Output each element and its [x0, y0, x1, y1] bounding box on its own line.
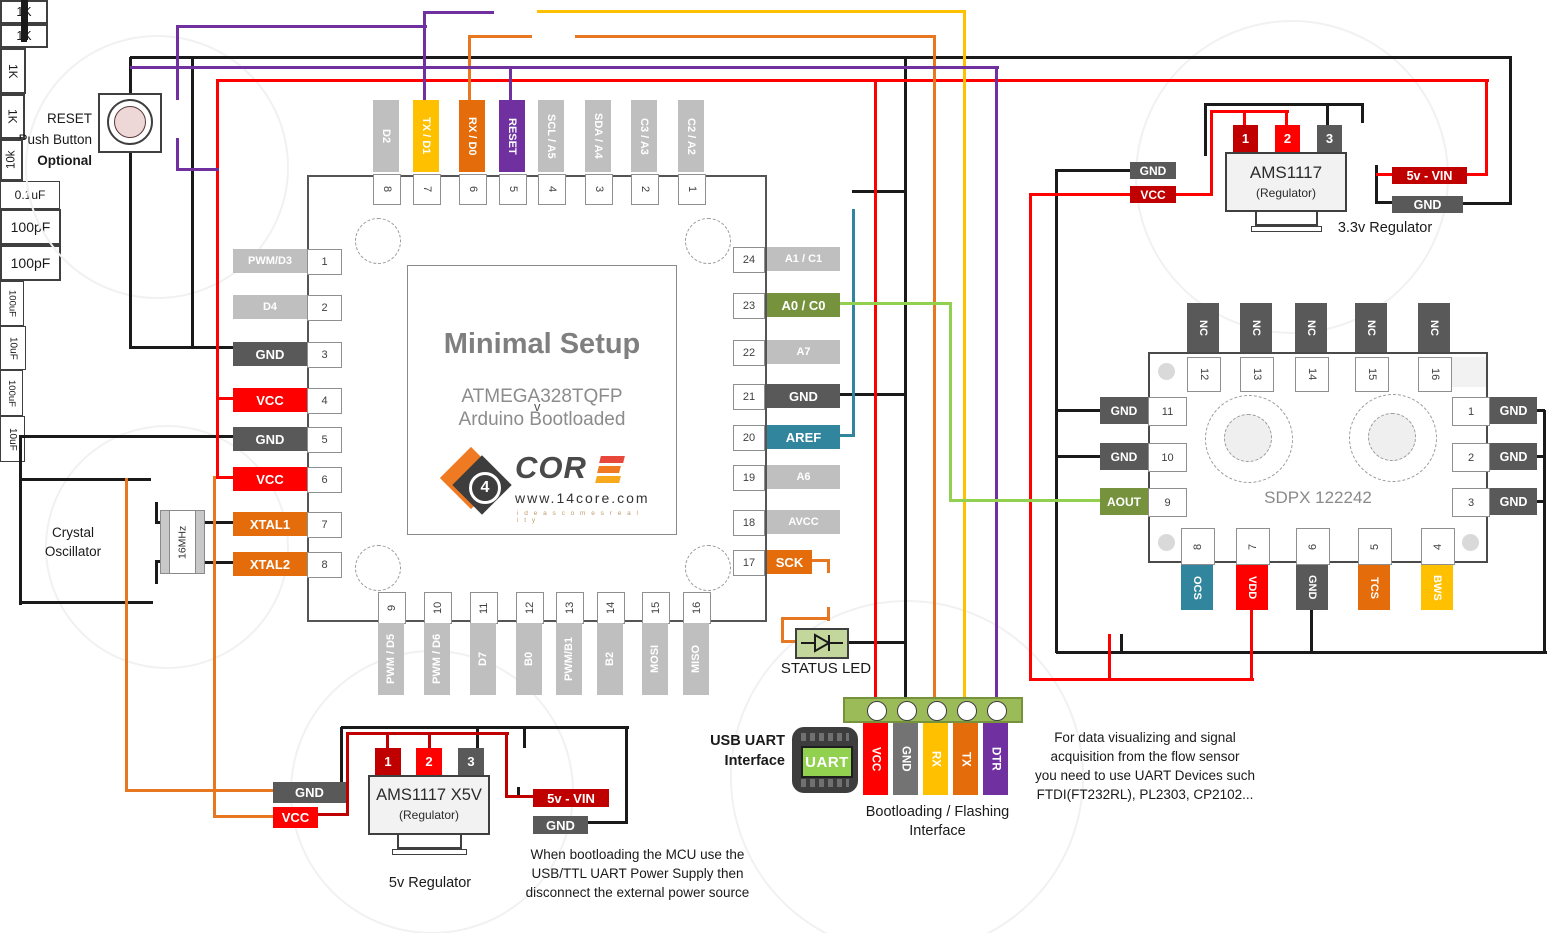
wire [1537, 500, 1545, 503]
mcu-left-pin-label: PWM/D3 [233, 249, 307, 273]
wire [155, 560, 158, 584]
reg33-vin-text: 5v - VIN [1407, 169, 1453, 183]
cap-value: 100uF [7, 290, 18, 317]
reg33-pin3-text: 3 [1326, 131, 1333, 146]
reg5-pin3: 3 [458, 748, 484, 775]
reg33-vcc-label: VCC [1130, 186, 1176, 203]
sensor-top-pin-number: 15 [1355, 357, 1389, 392]
mcu-right-pin-number: 23 [733, 293, 765, 319]
sensor-top-pin-number: 13 [1240, 357, 1274, 392]
wire [346, 732, 349, 816]
uart-header-hole [957, 701, 977, 721]
mcu-top-pin-number: 2 [631, 174, 659, 205]
wire [176, 138, 179, 171]
wire [852, 209, 855, 437]
status-led [795, 628, 849, 659]
wire [19, 435, 22, 605]
reg5-vcc-text: VCC [282, 810, 309, 825]
reg5-name: AMS1117 X5V [370, 786, 488, 805]
mcu-right-pin-label: SCK [767, 550, 812, 574]
wire [1204, 103, 1364, 106]
wire [949, 499, 1101, 502]
logo-number: 4 [481, 479, 490, 497]
circuit-diagram: RESET Push Button Optional 1K 1K 1K 1K 1… [0, 0, 1561, 933]
mcu-top-pin-label: C3 / A3 [631, 100, 657, 172]
wire [476, 727, 479, 749]
sensor-corner-dot [1462, 534, 1479, 551]
mcu-top-pin-label: RX / D0 [459, 100, 485, 172]
wire [1509, 56, 1512, 205]
mcu-top-pin-label: SCL / A5 [538, 100, 564, 172]
wire [176, 168, 219, 171]
mcu-bottom-pin-label: B0 [516, 623, 542, 695]
crystal-band [161, 511, 170, 573]
logo-tagline: i d e a s c o m e s r e a l i t y [517, 510, 647, 524]
mcu-bottom-pin-number: 11 [470, 592, 498, 624]
reg5-vcc-label: VCC [273, 807, 318, 828]
wire [428, 732, 431, 749]
wire [1463, 202, 1511, 205]
sensor-port-inner [1368, 413, 1416, 461]
wire [20, 435, 234, 438]
sensor-right-pin-label: GND [1490, 443, 1537, 470]
reg33-vin-label: 5v - VIN [1392, 167, 1467, 184]
cap-band [21, 0, 27, 42]
wire [216, 79, 219, 479]
mcu-left-pin-number: 2 [307, 295, 342, 321]
cap-value: 10uF [7, 428, 18, 451]
reg5-tab-lip [392, 849, 467, 855]
mcu-top-pin-label: RESET [499, 100, 525, 172]
crystal-16mhz: 16MHz [160, 510, 205, 574]
wire [575, 35, 936, 38]
mcu-left-pin-label: D4 [233, 295, 307, 319]
reg5-gnd-label: GND [273, 782, 346, 803]
wire [423, 11, 426, 101]
sensor-right-pin-number: 2 [1452, 443, 1490, 472]
sensor-top-pin-number: 14 [1295, 357, 1329, 392]
wire [341, 726, 629, 729]
uart-chip-legs-top [801, 733, 849, 741]
mcu-bottom-pin-number: 14 [597, 592, 625, 624]
wire [203, 521, 234, 524]
wire [1243, 110, 1246, 126]
sensor-corner-square [1452, 357, 1486, 387]
reg5-pin1: 1 [375, 748, 401, 775]
brand-logo: 4 COR www.14core.com i d e a s c o m e s… [447, 448, 647, 528]
mcu-corner-mark [355, 218, 401, 264]
sensor-top-pin-label: NC [1295, 303, 1327, 352]
wire [386, 732, 389, 749]
mcu-bottom-pin-number: 10 [424, 592, 452, 624]
crystal-label: Crystal Oscillator [18, 523, 128, 561]
reg5-tab [397, 835, 462, 849]
crystal-label-line1: Crystal [18, 523, 128, 542]
wire [1057, 409, 1101, 412]
mcu-top-pin-number: 5 [499, 174, 527, 205]
mcu-left-pin-label: GND [233, 427, 307, 451]
sensor-bottom-pin-number: 5 [1358, 528, 1392, 565]
reg33-pin3: 3 [1317, 125, 1342, 152]
mcu-bottom-pin-label: MOSI [642, 623, 668, 695]
sensor-bottom-pin-number: 6 [1296, 528, 1330, 565]
wire [1210, 110, 1213, 196]
wire [933, 35, 936, 699]
wire [424, 11, 494, 14]
mcu-left-pin-number: 3 [307, 342, 342, 368]
sensor-right-pin-number: 3 [1452, 488, 1490, 517]
wire [1466, 173, 1487, 176]
wire [963, 10, 966, 699]
sensor-left-pin-label: GND [1100, 443, 1148, 470]
reg5-pin3-text: 3 [467, 754, 474, 769]
mcu-bottom-pin-number: 16 [683, 592, 711, 624]
mcu-bottom-pin-label: PWM / D5 [378, 623, 404, 695]
wire [1057, 455, 1101, 458]
wire [317, 813, 348, 816]
logo-e-bar [599, 456, 625, 463]
mcu-left-pin-number: 8 [307, 552, 342, 578]
sensor-left-pin-number: 11 [1148, 397, 1187, 426]
mcu-left-pin-number: 7 [307, 512, 342, 538]
cap-value: 10uF [8, 337, 19, 360]
mcu-right-pin-number: 19 [733, 465, 765, 491]
uart-pin-label: GND [893, 723, 918, 795]
wire [1543, 410, 1546, 653]
reg33-pin1-text: 1 [1242, 131, 1249, 146]
sensor-right-pin-label: GND [1490, 488, 1537, 515]
reg5-pin1-text: 1 [384, 754, 391, 769]
wire [1175, 193, 1213, 196]
sensor-bottom-pin-label: BWS [1421, 565, 1453, 610]
bootloading-caption: Bootloading / Flashing Interface [850, 803, 1025, 841]
logo-site: www.14core.com [515, 490, 650, 506]
mcu-bottom-pin-label: D7 [470, 623, 496, 695]
mcu-top-pin-label: TX / D1 [413, 100, 439, 172]
crystal-label-line2: Oscillator [18, 542, 128, 561]
wire [1057, 169, 1131, 172]
crystal-band [195, 511, 204, 573]
uart-chip: UART [792, 727, 858, 793]
reg33-gnd-text: GND [1140, 164, 1167, 178]
sensor-bottom-pin-label: GND [1296, 565, 1328, 610]
uart-note-line: For data visualizing and signal [1010, 728, 1280, 747]
wire [1537, 409, 1545, 412]
sensor-name: SDPX 122242 [1238, 488, 1398, 508]
wire [20, 478, 151, 481]
wire [1120, 634, 1123, 653]
mcu-bottom-pin-number: 9 [378, 592, 406, 624]
mcu-top-pin-number: 4 [538, 174, 566, 205]
mcu-corner-mark [685, 218, 731, 264]
sensor-bottom-pin-label: TCS [1358, 565, 1390, 610]
mcu-left-pin-number: 4 [307, 388, 342, 414]
cap-100pF-bottom: 100pF [0, 245, 61, 281]
sensor-left-pin-number: 10 [1148, 443, 1187, 472]
resistor-10k-led: 10k [0, 139, 23, 181]
reg33-gnd2-text: GND [1414, 198, 1442, 212]
resistor-1k-reset: 1K [0, 48, 26, 94]
wire [470, 35, 532, 38]
wire [852, 190, 907, 193]
wire [586, 821, 627, 824]
wire [1537, 455, 1545, 458]
usb-uart-line2: Interface [685, 751, 785, 771]
reg5-caption: 5v Regulator [375, 875, 485, 891]
wire [840, 302, 952, 305]
wire [509, 66, 512, 100]
sensor-top-pin-number: 16 [1418, 357, 1452, 392]
mcu-right-pin-number: 22 [733, 340, 765, 366]
mcu-left-pin-number: 1 [307, 249, 342, 275]
uart-header-hole [927, 701, 947, 721]
sensor-corner-dot [1158, 363, 1175, 380]
uart-pin-label: VCC [863, 723, 888, 795]
reg33-cap-100uF: 100uF [0, 370, 23, 416]
mcu-corner-mark [355, 545, 401, 591]
wire [904, 57, 907, 700]
wire [213, 476, 216, 818]
mcu-top-pin-number: 7 [413, 174, 441, 205]
sensor-bottom-pin-label: OCS [1181, 565, 1213, 610]
uart-note-line: FTDI(FT232RL), PL2303, CP2102... [1010, 785, 1280, 804]
uart-note-line: you need to use UART Devices such [1010, 766, 1280, 785]
sensor-corner-dot [1158, 534, 1175, 551]
sensor-bottom-pin-number: 4 [1421, 528, 1455, 565]
reg33-tab-lip [1251, 226, 1322, 232]
sensor-top-pin-label: NC [1187, 303, 1219, 352]
reg33-body: AMS1117 (Regulator) [1225, 152, 1347, 212]
uart-note: For data visualizing and signal acquisit… [1010, 728, 1280, 804]
wire [340, 727, 343, 784]
sensor-left-pin-label: GND [1100, 397, 1148, 424]
sensor-left-pin-number: 9 [1148, 488, 1187, 517]
mcu-left-pin-number: 5 [307, 427, 342, 453]
sensor-right-pin-number: 1 [1452, 397, 1490, 426]
cap-value: 100uF [6, 380, 17, 407]
wire [537, 10, 966, 13]
reg5-pin2: 2 [416, 748, 442, 775]
mcu-right-pin-number: 21 [733, 384, 765, 410]
wire [1108, 634, 1111, 680]
reg33-gnd-label: GND [1130, 162, 1176, 179]
wire [949, 302, 952, 502]
mcu-right-pin-number: 24 [733, 247, 765, 273]
mcu-right-pin-number: 17 [733, 550, 765, 576]
mcu-right-pin-label: A0 / C0 [767, 293, 840, 317]
reset-button-cap [114, 106, 146, 138]
sensor-bottom-pin-number: 8 [1181, 528, 1215, 565]
mcu-left-pin-label: VCC [233, 388, 307, 412]
reg5-gnd2-text: GND [546, 818, 575, 833]
wire [1285, 110, 1288, 126]
wire [625, 727, 628, 824]
mcu-corner-mark [685, 545, 731, 591]
reg5-sub: (Regulator) [370, 808, 488, 822]
mcu-bottom-pin-label: PWM / D6 [424, 623, 450, 695]
crystal-freq: 16MHz [170, 511, 195, 573]
reg5-cap-100uF: 100uF [0, 281, 24, 326]
reg5-cap-10uF: 10uF [0, 326, 26, 370]
wire [191, 57, 194, 349]
mcu-top-pin-number: 3 [585, 174, 613, 205]
uart-chip-legs-bottom [801, 779, 849, 787]
logo-e-bar [595, 476, 621, 483]
reg33-pin1: 1 [1233, 125, 1258, 152]
usb-uart-label: USB UART Interface [685, 731, 785, 771]
mcu-top-pin-label: D2 [373, 100, 399, 172]
uart-pin-label: RX [923, 723, 948, 795]
wire [216, 79, 1489, 82]
logo-e-bar [597, 466, 621, 473]
sensor-top-pin-label: NC [1355, 303, 1387, 352]
reset-line1: RESET [0, 108, 92, 129]
wire [176, 25, 179, 100]
reg33-tab [1255, 212, 1318, 226]
reg33-vcc-text: VCC [1140, 188, 1165, 202]
reg5-gnd2-label: GND [533, 816, 588, 834]
mcu-top-pin-number: 8 [373, 174, 401, 205]
wire [874, 79, 877, 699]
bootload-note-line: When bootloading the MCU use the [500, 845, 775, 864]
status-led-label: STATUS LED [771, 660, 881, 677]
wire [1375, 201, 1393, 204]
usb-uart-line1: USB UART [685, 731, 785, 751]
reg5-gnd-text: GND [295, 785, 324, 800]
wire [781, 617, 829, 620]
mcu-bottom-pin-label: B2 [597, 623, 623, 695]
wire [1310, 610, 1313, 653]
wire [840, 434, 855, 437]
wire [1375, 165, 1378, 204]
mcu-bottom-pin-number: 15 [642, 592, 670, 624]
uart-chip-label: UART [805, 754, 849, 771]
wire [1030, 193, 1131, 196]
wire [219, 476, 234, 479]
wire [995, 66, 998, 699]
uart-header-hole [867, 701, 887, 721]
wire [129, 57, 132, 94]
wire [203, 561, 234, 564]
mcu-left-pin-label: VCC [233, 467, 307, 491]
logo-word: COR [515, 450, 587, 486]
sensor-bottom-pin-label: VDD [1236, 565, 1268, 610]
mcu-bottom-pin-number: 12 [516, 592, 544, 624]
uart-header-hole [987, 701, 1007, 721]
mcu-left-pin-label: XTAL2 [233, 552, 307, 576]
uart-note-line: acquisition from the flow sensor [1010, 747, 1280, 766]
wire [125, 789, 274, 792]
wire [1204, 104, 1207, 156]
sensor-bottom-pin-number: 7 [1236, 528, 1270, 565]
wire [1250, 610, 1253, 680]
reg33-name: AMS1117 [1227, 163, 1345, 183]
logo-ring: 4 [469, 472, 501, 504]
mcu-left-pin-number: 6 [307, 467, 342, 493]
mcu-title: Minimal Setup [407, 328, 677, 361]
bootloading-caption-line2: Interface [850, 822, 1025, 841]
wire [155, 502, 158, 523]
mcu-bottom-pin-number: 13 [556, 592, 584, 624]
mcu-right-pin-label: AREF [767, 425, 840, 449]
wire [505, 795, 534, 798]
led-diode-icon [797, 630, 847, 657]
reg33-gnd2-label: GND [1392, 196, 1463, 213]
mcu-left-pin-label: GND [233, 342, 307, 366]
uart-header-hole [897, 701, 917, 721]
reg5-vin-label: 5v - VIN [533, 789, 609, 807]
wire [213, 815, 274, 818]
mcu-right-pin-number: 18 [733, 510, 765, 536]
wire [523, 727, 526, 748]
wire [1210, 110, 1289, 113]
wire [1029, 193, 1032, 681]
reg5-body: AMS1117 X5V (Regulator) [368, 775, 490, 835]
reg5-vin-text: 5v - VIN [547, 791, 595, 806]
wire [219, 397, 234, 400]
mcu-right-pin-label: A1 / C1 [767, 247, 840, 271]
reg33-sub: (Regulator) [1227, 186, 1345, 200]
mcu-left-pin-label: XTAL1 [233, 512, 307, 536]
mcu-bottom-pin-label: MISO [683, 623, 709, 695]
wire [177, 25, 427, 28]
reg33-pin2-text: 2 [1284, 131, 1291, 146]
mcu-right-pin-label: GND [767, 384, 840, 408]
mcu-top-pin-label: SDA / A4 [585, 100, 611, 172]
mcu-right-pin-number: 20 [733, 425, 765, 451]
wire [1029, 678, 1254, 681]
uart-pin-label: DTR [983, 723, 1008, 795]
mcu-right-pin-label: A6 [767, 465, 840, 489]
reg5-pin2-text: 2 [425, 754, 432, 769]
mcu-top-pin-number: 1 [678, 174, 706, 205]
wire [129, 151, 132, 349]
uart-pin-label: TX [953, 723, 978, 795]
mcu-top-pin-label: C2 / A2 [678, 100, 704, 172]
wire [505, 732, 508, 798]
wire [1361, 104, 1364, 123]
wire [130, 56, 1512, 59]
bootloading-caption-line1: Bootloading / Flashing [850, 803, 1025, 822]
bootload-note: When bootloading the MCU use the USB/TTL… [500, 845, 775, 902]
sensor-top-pin-label: NC [1418, 303, 1450, 352]
bootload-note-line: USB/TTL UART Power Supply then [500, 864, 775, 883]
reg33-caption: 3.3v Regulator [1330, 220, 1440, 236]
sensor-top-pin-label: NC [1240, 303, 1272, 352]
wire [1485, 79, 1488, 176]
sensor-top-pin-number: 12 [1187, 357, 1221, 392]
wire [827, 559, 830, 573]
reg33-pin2: 2 [1275, 125, 1300, 152]
wire [130, 66, 999, 69]
wire [1056, 651, 1547, 654]
sensor-left-pin-label: AOUT [1100, 488, 1148, 515]
wire [781, 640, 796, 643]
sensor-port-inner [1224, 414, 1272, 462]
wire [1376, 173, 1393, 176]
wire [20, 601, 153, 604]
mcu-right-pin-label: A7 [767, 340, 840, 364]
bootload-note-line: disconnect the external power source [500, 883, 775, 902]
mcu-top-pin-number: 6 [459, 174, 487, 205]
mcu-bottom-pin-label: PWM/B1 [556, 623, 582, 695]
mcu-subtitle: Arduino Bootloaded [407, 409, 677, 431]
wire [1326, 104, 1329, 126]
mcu-right-pin-label: AVCC [767, 510, 840, 534]
sensor-right-pin-label: GND [1490, 397, 1537, 424]
uart-chip-screen: UART [801, 746, 853, 778]
